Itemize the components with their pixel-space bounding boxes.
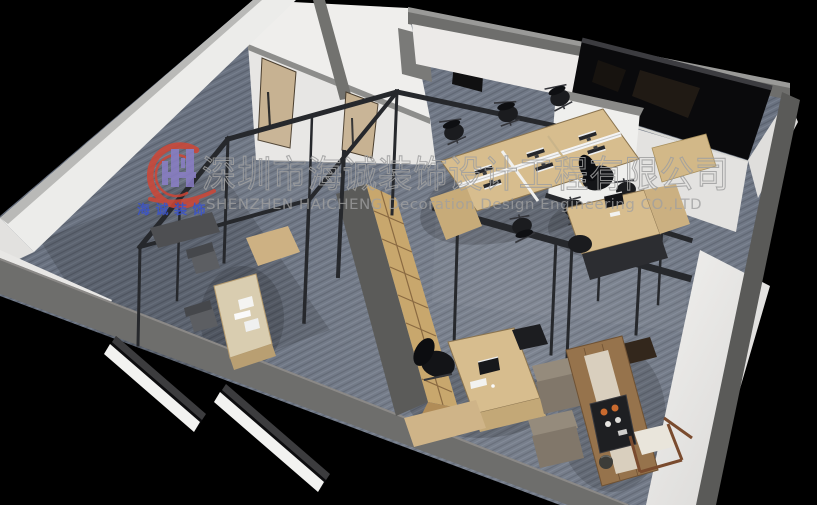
watermark-cn-text: 深圳市海诚装饰设计工程有限公司 bbox=[202, 153, 730, 196]
watermark: 海诚装饰 深圳市海诚装饰设计工程有限公司 SHENZHEN HAICHENG D… bbox=[137, 146, 730, 218]
tea-cup bbox=[601, 409, 608, 416]
logo-cn-text: 海诚装饰 bbox=[137, 202, 211, 218]
tea-cup bbox=[615, 417, 621, 423]
tea-cup bbox=[605, 421, 611, 427]
office-render-canvas: 海诚装饰 深圳市海诚装饰设计工程有限公司 SHENZHEN HAICHENG D… bbox=[0, 0, 817, 505]
mouse bbox=[491, 384, 495, 388]
watermark-en-text: SHENZHEN HAICHENG Decoration Design Engi… bbox=[206, 197, 702, 213]
office-3d-render: 海诚装饰 深圳市海诚装饰设计工程有限公司 SHENZHEN HAICHENG D… bbox=[0, 0, 817, 505]
tea-cup bbox=[612, 405, 619, 412]
guest-chair bbox=[568, 235, 592, 253]
partition-post bbox=[138, 247, 140, 345]
